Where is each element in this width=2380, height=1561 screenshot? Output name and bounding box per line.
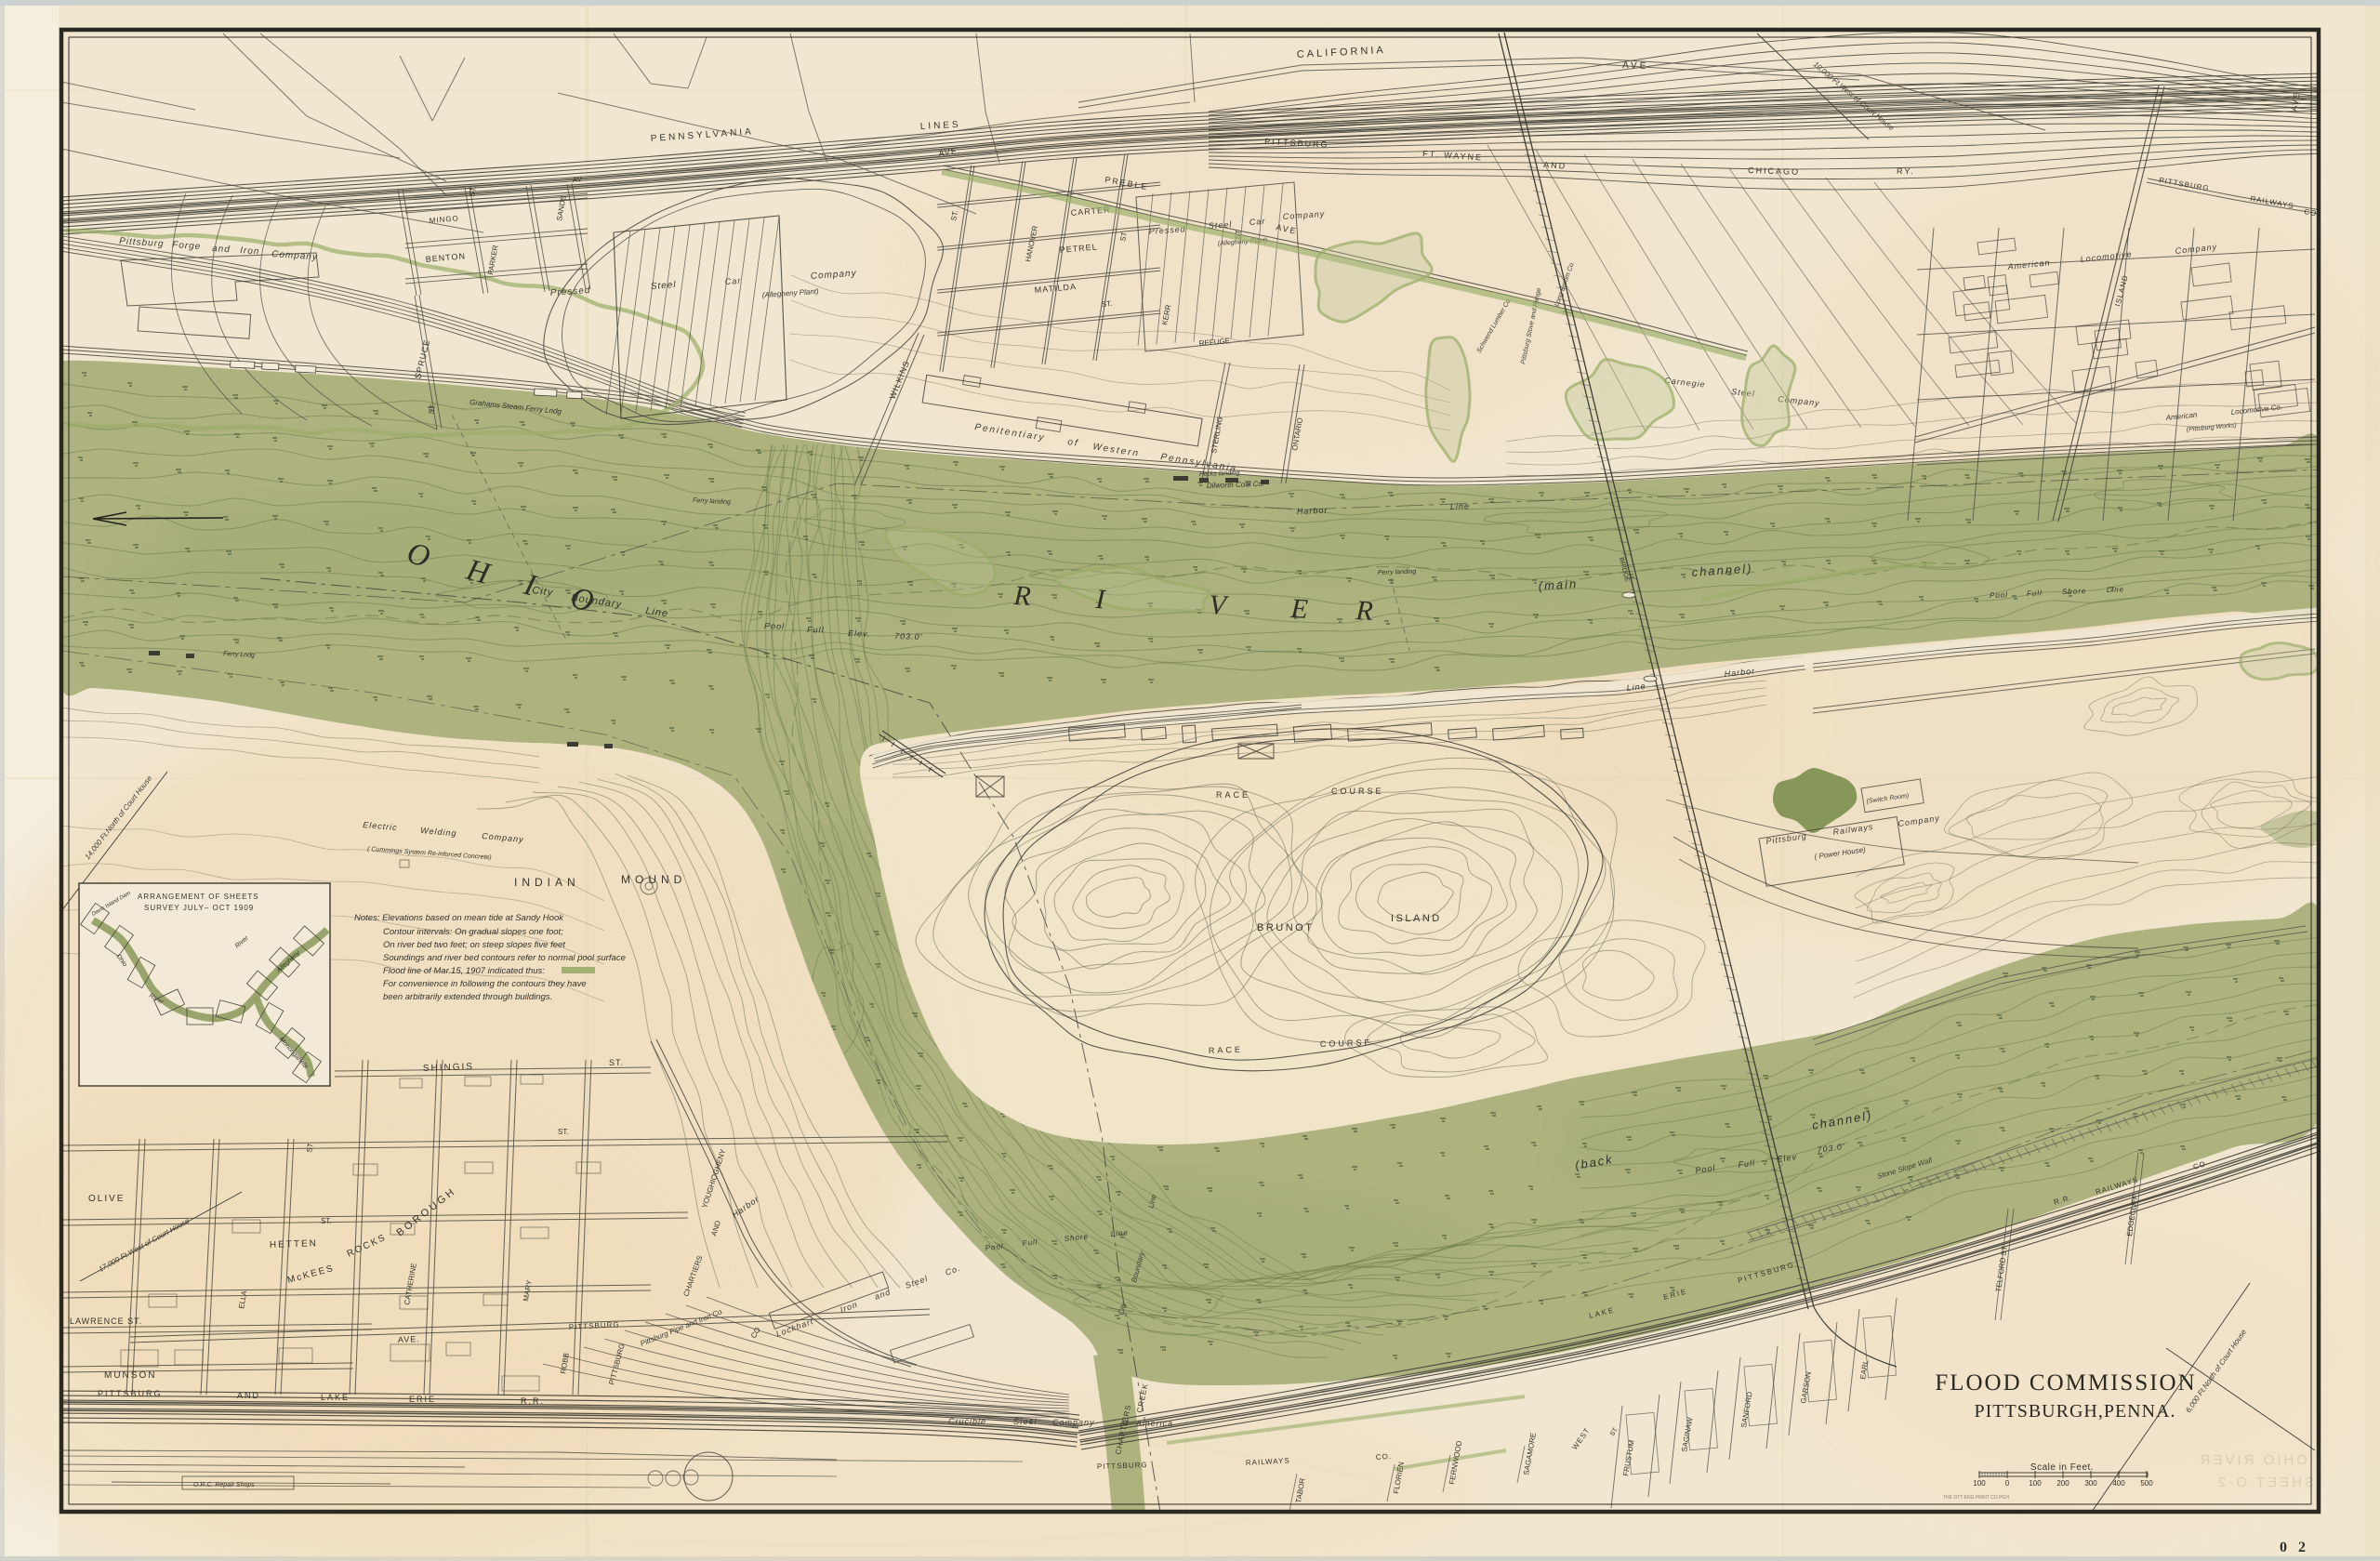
svg-text:THE OTT ENG PRINT CO PGH: THE OTT ENG PRINT CO PGH bbox=[1943, 1495, 2009, 1501]
svg-text:LAKE: LAKE bbox=[321, 1393, 350, 1402]
svg-text:COURSE: COURSE bbox=[1331, 787, 1384, 796]
svg-text:Full: Full bbox=[807, 625, 825, 635]
svg-text:500: 500 bbox=[2140, 1479, 2153, 1488]
svg-text:Car: Car bbox=[724, 276, 741, 286]
svg-text:ST.: ST. bbox=[1101, 299, 1112, 309]
svg-text:For convenience in following t: For convenience in following the contour… bbox=[383, 979, 587, 989]
svg-text:Car: Car bbox=[1249, 217, 1265, 227]
svg-text:Soundings and river bed contou: Soundings and river bed contours refer t… bbox=[383, 953, 626, 963]
svg-text:INDIAN: INDIAN bbox=[514, 876, 580, 889]
svg-text:R: R bbox=[1012, 580, 1032, 612]
svg-text:AND: AND bbox=[1543, 160, 1567, 171]
svg-text:Flood line of Mar.15, 1907 ind: Flood line of Mar.15, 1907 indicated thu… bbox=[383, 966, 545, 976]
svg-text:Perry landing: Perry landing bbox=[1378, 569, 1417, 576]
svg-text:ERIE: ERIE bbox=[409, 1395, 436, 1404]
svg-text:R: R bbox=[1355, 595, 1374, 627]
svg-text:LAWRENCE ST.: LAWRENCE ST. bbox=[70, 1316, 142, 1326]
svg-text:PITTSBURG: PITTSBURG bbox=[1097, 1461, 1148, 1471]
svg-text:ST.: ST. bbox=[321, 1217, 332, 1225]
svg-text:CHICAGO: CHICAGO bbox=[1748, 165, 1800, 177]
svg-text:0: 0 bbox=[2280, 1540, 2287, 1555]
svg-text:703.0': 703.0' bbox=[894, 631, 923, 642]
svg-text:CO.: CO. bbox=[1376, 1452, 1393, 1462]
svg-text:PITTSBURGH,PENNA.: PITTSBURGH,PENNA. bbox=[1974, 1401, 2175, 1422]
svg-text:Scale in Feet.: Scale in Feet. bbox=[2030, 1462, 2094, 1473]
svg-text:RACE: RACE bbox=[1216, 790, 1250, 800]
svg-text:AND: AND bbox=[237, 1391, 260, 1400]
svg-text:Line: Line bbox=[2107, 585, 2124, 594]
svg-text:Pool: Pool bbox=[1990, 590, 2008, 600]
svg-text:E: E bbox=[1289, 593, 1309, 625]
svg-text:RACE: RACE bbox=[1209, 1045, 1243, 1055]
svg-text:SHEET O-2: SHEET O-2 bbox=[2215, 1475, 2314, 1490]
svg-text:Steel: Steel bbox=[650, 280, 676, 292]
svg-text:Elev.: Elev. bbox=[848, 628, 871, 639]
svg-text:SURVEY JULY– OCT 1909: SURVEY JULY– OCT 1909 bbox=[144, 904, 254, 912]
svg-text:AV: AV bbox=[572, 175, 582, 184]
svg-text:COURSE: COURSE bbox=[1320, 1038, 1373, 1049]
svg-text:0: 0 bbox=[2005, 1479, 2010, 1488]
svg-text:Contour intervals: On gradual: Contour intervals: On gradual slopes one… bbox=[383, 927, 563, 937]
svg-text:been arbitrarily extended thro: been arbitrarily extended through buildi… bbox=[383, 992, 552, 1002]
svg-text:MOUND: MOUND bbox=[621, 873, 686, 886]
svg-text:ARRANGEMENT OF SHEETS: ARRANGEMENT OF SHEETS bbox=[138, 893, 259, 901]
svg-text:of: of bbox=[1067, 437, 1080, 449]
svg-text:Pool: Pool bbox=[764, 621, 785, 631]
svg-text:HETTEN: HETTEN bbox=[270, 1238, 318, 1250]
svg-text:ISLAND: ISLAND bbox=[1391, 913, 1442, 924]
svg-text:Notes: Elevations based on m: Notes: Elevations based on mean tide at … bbox=[354, 913, 564, 923]
svg-text:OLIVE: OLIVE bbox=[88, 1194, 125, 1204]
svg-text:PITTSBURG: PITTSBURG bbox=[98, 1389, 163, 1398]
svg-text:LINES: LINES bbox=[920, 120, 961, 132]
svg-text:OHIO RIVER: OHIO RIVER bbox=[2198, 1452, 2307, 1468]
svg-text:2: 2 bbox=[2298, 1540, 2306, 1555]
svg-text:(main: (main bbox=[1538, 576, 1578, 593]
svg-text:SHINGIS: SHINGIS bbox=[423, 1062, 474, 1074]
svg-text:100: 100 bbox=[2029, 1479, 2042, 1488]
svg-text:ST.: ST. bbox=[609, 1058, 624, 1067]
svg-text:ST: ST bbox=[305, 1143, 315, 1154]
svg-text:AVE: AVE bbox=[1622, 60, 1649, 72]
svg-text:Company: Company bbox=[1052, 1418, 1095, 1427]
svg-text:Shore: Shore bbox=[2062, 587, 2087, 596]
svg-text:Harbor: Harbor bbox=[1297, 506, 1329, 516]
svg-text:On river bed two feet; on ste: On river bed two feet; on steep slopes f… bbox=[383, 940, 565, 950]
svg-text:ST.: ST. bbox=[558, 1128, 569, 1136]
svg-text:Line: Line bbox=[1450, 501, 1470, 511]
svg-text:400: 400 bbox=[2112, 1479, 2125, 1488]
svg-text:Iron: Iron bbox=[240, 245, 260, 257]
svg-text:MUNSON: MUNSON bbox=[104, 1370, 156, 1381]
svg-text:AVE.: AVE. bbox=[398, 1334, 420, 1344]
svg-text:Steel: Steel bbox=[1013, 1417, 1038, 1426]
svg-text:100: 100 bbox=[1973, 1479, 1986, 1488]
svg-text:300: 300 bbox=[2084, 1479, 2097, 1488]
svg-text:FLOOD COMMISSION: FLOOD COMMISSION bbox=[1935, 1370, 2196, 1396]
svg-text:200: 200 bbox=[2056, 1479, 2069, 1488]
svg-text:Full: Full bbox=[1022, 1237, 1038, 1248]
svg-text:R.R.: R.R. bbox=[521, 1396, 545, 1406]
svg-text:BRUNOT: BRUNOT bbox=[1257, 922, 1314, 933]
svg-text:Forge: Forge bbox=[172, 240, 202, 252]
svg-text:Full: Full bbox=[2027, 589, 2043, 598]
svg-text:O.R.C. Repair Shops: O.R.C. Repair Shops bbox=[193, 1482, 255, 1488]
svg-text:Crucible: Crucible bbox=[948, 1417, 986, 1426]
